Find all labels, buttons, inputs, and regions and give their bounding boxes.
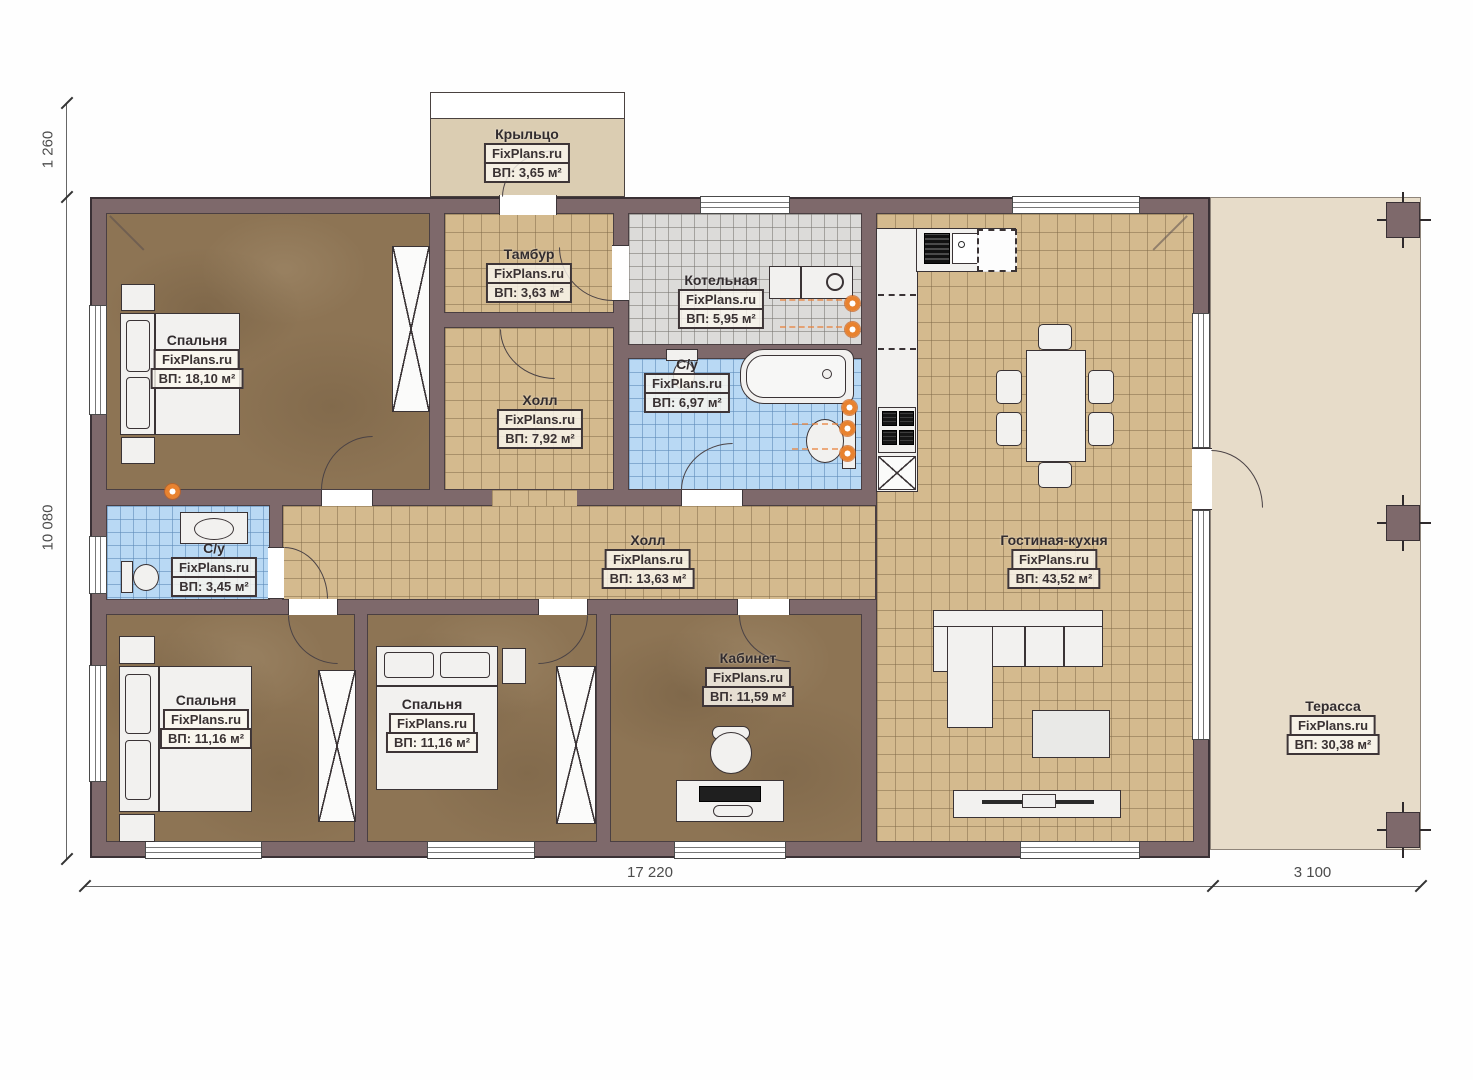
room-area: ВП: 11,59 м² <box>702 686 794 707</box>
room-area: ВП: 7,92 м² <box>497 428 583 449</box>
window <box>1012 196 1140 214</box>
brand-watermark: FixPlans.ru <box>486 263 572 284</box>
boiler-door-opening <box>612 245 629 301</box>
room-name: Терасса <box>1287 698 1380 714</box>
dimension-line-left <box>66 103 67 860</box>
brand-watermark: FixPlans.ru <box>705 667 791 688</box>
room-area: ВП: 13,63 м² <box>602 568 695 589</box>
base-cabinet <box>878 456 916 490</box>
brand-watermark: FixPlans.ru <box>389 713 475 734</box>
window <box>674 841 786 859</box>
room-area: ВП: 5,95 м² <box>678 308 764 329</box>
counter-divider <box>878 348 916 350</box>
room-name: Холл <box>497 392 583 408</box>
bedroom-3-door-opening <box>538 599 588 615</box>
wardrobe <box>318 670 356 822</box>
brand-watermark: FixPlans.ru <box>171 557 257 578</box>
room-name: С/у <box>644 356 730 372</box>
porch-step <box>430 92 625 120</box>
room-area: ВП: 3,63 м² <box>486 282 572 303</box>
burner <box>899 430 914 445</box>
room-area: ВП: 18,10 м² <box>151 368 244 389</box>
burner <box>899 411 914 426</box>
room-label-bedroom-3: Спальня FixPlans.ru ВП: 11,16 м² <box>386 696 478 753</box>
wardrobe <box>392 246 430 412</box>
brand-watermark: FixPlans.ru <box>605 549 691 570</box>
brand-watermark: FixPlans.ru <box>678 289 764 310</box>
room-name: Кабинет <box>702 650 794 666</box>
utility-point <box>165 484 180 499</box>
monitor <box>699 786 761 802</box>
room-name: Котельная <box>678 272 764 288</box>
pipe-line <box>780 299 842 301</box>
nightstand <box>119 814 155 842</box>
room-area: ВП: 3,45 м² <box>171 576 257 597</box>
washer-divider <box>800 267 802 298</box>
brand-watermark: FixPlans.ru <box>644 373 730 394</box>
room-label-bedroom-master: Спальня FixPlans.ru ВП: 18,10 м² <box>151 332 244 389</box>
room-label-office: Кабинет FixPlans.ru ВП: 11,59 м² <box>702 650 794 707</box>
pillow <box>125 740 151 800</box>
toilet-tank <box>121 561 133 593</box>
room-area: ВП: 11,16 м² <box>160 728 252 749</box>
pillow <box>125 674 151 734</box>
utility-point <box>842 400 857 415</box>
window <box>89 665 107 782</box>
bath-small-door-opening <box>268 547 284 599</box>
sofa-cushion-line <box>1063 627 1065 666</box>
nightstand <box>121 284 155 311</box>
pillow <box>440 652 490 678</box>
floor-plan: Крыльцо FixPlans.ru ВП: 3,65 м² Тамбур F… <box>0 0 1473 1080</box>
terrace-post <box>1386 202 1420 238</box>
bedroom-2-door-opening <box>288 599 338 615</box>
utility-point <box>845 296 860 311</box>
brand-watermark: FixPlans.ru <box>154 349 240 370</box>
sofa-back <box>933 610 1103 627</box>
toilet-bowl <box>133 564 159 591</box>
window <box>1192 313 1210 448</box>
washer-door <box>826 273 844 291</box>
dimension-label-porch-offset: 1 260 <box>40 115 57 185</box>
dimension-tick <box>61 853 74 866</box>
brand-watermark: FixPlans.ru <box>1011 549 1097 570</box>
dining-chair <box>996 412 1022 446</box>
terrace-post <box>1386 812 1420 848</box>
room-label-tambour: Тамбур FixPlans.ru ВП: 3,63 м² <box>486 246 572 303</box>
pillow <box>126 320 150 372</box>
brand-watermark: FixPlans.ru <box>497 409 583 430</box>
utility-point <box>840 446 855 461</box>
window <box>1020 841 1140 859</box>
bedroom-master-door-opening <box>321 490 373 506</box>
window <box>700 196 790 214</box>
coffee-table <box>1032 710 1110 758</box>
room-name: Тамбур <box>486 246 572 262</box>
room-area: ВП: 3,65 м² <box>484 162 570 183</box>
floor-hall-central <box>282 505 876 600</box>
nightstand <box>502 648 526 684</box>
dimension-label-house-depth: 10 080 <box>40 493 57 563</box>
window <box>145 841 262 859</box>
utility-point <box>845 322 860 337</box>
pipe-line <box>792 423 838 425</box>
room-name: Спальня <box>386 696 478 712</box>
nightstand <box>121 437 155 464</box>
entry-door-opening <box>499 195 557 215</box>
room-name: Холл <box>602 532 695 548</box>
brand-watermark: FixPlans.ru <box>163 709 249 730</box>
sofa-cushion-line <box>1024 627 1026 666</box>
room-label-bedroom-2: Спальня FixPlans.ru ВП: 11,16 м² <box>160 692 252 749</box>
room-label-living-kitchen: Гостиная-кухня FixPlans.ru ВП: 43,52 м² <box>1000 532 1107 589</box>
dining-chair <box>1038 324 1072 350</box>
dimension-tick <box>61 97 74 110</box>
brand-watermark: FixPlans.ru <box>484 143 570 164</box>
dimension-tick <box>61 191 74 204</box>
room-area: ВП: 43,52 м² <box>1008 568 1101 589</box>
brand-watermark: FixPlans.ru <box>1290 715 1376 736</box>
room-area: ВП: 30,38 м² <box>1287 734 1380 755</box>
burner <box>882 411 897 426</box>
dimension-line-bottom <box>85 886 1421 887</box>
keyboard <box>713 805 753 817</box>
kitchen-sink-basin <box>952 233 978 264</box>
room-label-hall-central: Холл FixPlans.ru ВП: 13,63 м² <box>602 532 695 589</box>
nightstand <box>119 636 155 664</box>
window <box>1192 510 1210 740</box>
window <box>89 305 107 415</box>
dimension-label-house-width: 17 220 <box>580 864 720 881</box>
counter-divider <box>878 294 916 296</box>
pipe-line <box>780 326 842 328</box>
dining-chair <box>1088 412 1114 446</box>
room-name: Спальня <box>160 692 252 708</box>
room-area: ВП: 11,16 м² <box>386 732 478 753</box>
bathtub-drain <box>822 369 832 379</box>
hall-passage <box>492 490 577 506</box>
dining-chair <box>996 370 1022 404</box>
sofa-armrest <box>933 626 948 672</box>
room-name: Крыльцо <box>484 126 570 142</box>
burner <box>882 430 897 445</box>
room-name: Гостиная-кухня <box>1000 532 1107 548</box>
room-name: С/у <box>171 540 257 556</box>
terrace-door-opening <box>1192 448 1212 510</box>
office-door-opening <box>737 599 790 615</box>
bed-headboard-line <box>377 685 497 687</box>
sofa-chaise <box>947 626 993 728</box>
room-name: Спальня <box>151 332 244 348</box>
sofa-seat <box>985 626 1103 667</box>
office-chair <box>710 732 752 774</box>
bath-main-door-opening <box>681 490 743 506</box>
room-label-porch: Крыльцо FixPlans.ru ВП: 3,65 м² <box>484 126 570 183</box>
kitchen-sink-drainer <box>924 233 950 264</box>
pipe-line <box>792 448 838 450</box>
dining-chair <box>1038 462 1072 488</box>
room-label-bath-main: С/у FixPlans.ru ВП: 6,97 м² <box>644 356 730 413</box>
room-label-hall-north: Холл FixPlans.ru ВП: 7,92 м² <box>497 392 583 449</box>
tv-base <box>1022 794 1056 808</box>
room-label-bath-small: С/у FixPlans.ru ВП: 3,45 м² <box>171 540 257 597</box>
wardrobe <box>556 666 596 824</box>
dining-chair <box>1088 370 1114 404</box>
dimension-label-terrace-width: 3 100 <box>1245 864 1380 881</box>
terrace-post <box>1386 505 1420 541</box>
window <box>89 536 107 594</box>
room-label-terrace: Терасса FixPlans.ru ВП: 30,38 м² <box>1287 698 1380 755</box>
sink-basin <box>806 419 844 463</box>
utility-point <box>840 421 855 436</box>
window <box>427 841 535 859</box>
pillow <box>126 377 150 429</box>
sink-basin <box>194 518 234 540</box>
pillow <box>384 652 434 678</box>
faucet <box>958 241 965 248</box>
dining-table <box>1026 350 1086 462</box>
upper-cabinet-dashed <box>977 229 1017 272</box>
room-area: ВП: 6,97 м² <box>644 392 730 413</box>
room-label-boiler: Котельная FixPlans.ru ВП: 5,95 м² <box>678 272 764 329</box>
